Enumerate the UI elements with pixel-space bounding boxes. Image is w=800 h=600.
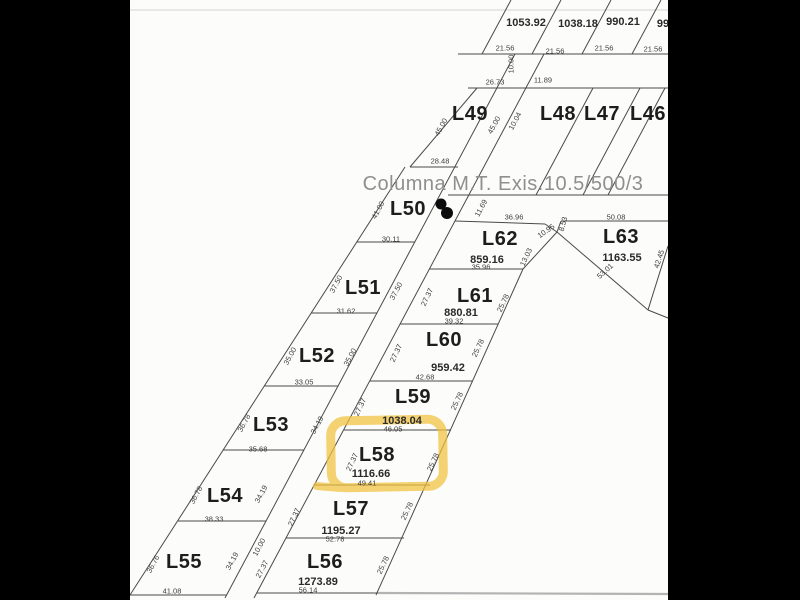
dim-42-68: 42.68: [416, 373, 435, 382]
dim-28-48: 28.48: [431, 157, 450, 166]
lot-L51: L51: [345, 277, 381, 299]
dim-21-56-a: 21.56: [496, 44, 515, 53]
dim-21-56-d: 21.56: [644, 45, 663, 54]
lot-L46: L46: [630, 103, 666, 125]
top-area-1: 1053.92: [506, 17, 546, 29]
cadastral-map-photo: Columna M.T. Exis.10.5/500/3 1053.921038…: [0, 0, 800, 600]
dim-41-08: 41.08: [163, 587, 182, 596]
lot-L63: L63: [603, 226, 639, 248]
lot-L57: L57: [333, 498, 369, 520]
dim-52-78: 52.78: [326, 535, 345, 544]
dim-50-08: 50.08: [607, 213, 626, 222]
lot-L61: L61: [457, 285, 493, 307]
lot-L49: L49: [452, 103, 488, 125]
dim-38-33: 38.33: [205, 515, 224, 524]
lot-L50: L50: [390, 198, 426, 220]
dim-21-56-c: 21.56: [595, 44, 614, 53]
left-black-bar: [0, 0, 130, 600]
dim-46-05: 46.05: [384, 425, 403, 434]
dim-56-14: 56.14: [299, 586, 318, 595]
lot-L55: L55: [166, 551, 202, 573]
dim-21-56-b: 21.56: [546, 47, 565, 56]
lot-L58: L58: [359, 444, 395, 466]
right-black-bar: [668, 0, 800, 600]
dim-33-05: 33.05: [295, 378, 314, 387]
dim-49-41: 49.41: [358, 479, 377, 488]
columna-note: Columna M.T. Exis.10.5/500/3: [363, 173, 644, 195]
dim-31-62: 31.62: [337, 307, 356, 316]
dim-26-73: 26.73: [486, 78, 505, 87]
area-L60: 959.42: [431, 362, 465, 374]
lot-L52: L52: [299, 345, 335, 367]
paper-background: [130, 0, 668, 600]
lot-L56: L56: [307, 551, 343, 573]
lot-L54: L54: [207, 485, 243, 507]
lot-L48: L48: [540, 103, 576, 125]
dim-10-00-top: 10.00: [507, 55, 516, 74]
lot-L53: L53: [253, 414, 289, 436]
dim-39-32: 39.32: [445, 317, 464, 326]
lot-L59: L59: [395, 386, 431, 408]
dim-36-96: 36.96: [505, 213, 524, 222]
lot-L47: L47: [584, 103, 620, 125]
top-area-4: 99: [657, 18, 669, 30]
columna-dot-icon: [441, 207, 453, 219]
bottom-boundary-faded-line: [378, 593, 668, 594]
lot-L62: L62: [482, 228, 518, 250]
top-area-3: 990.21: [606, 16, 640, 28]
dim-35-96: 35.96: [472, 263, 491, 272]
dim-11-89: 11.89: [534, 76, 552, 85]
dim-35-68: 35.68: [249, 445, 268, 454]
top-area-2: 1038.18: [558, 18, 598, 30]
dim-30-11: 30.11: [382, 235, 400, 244]
highlight-tail-stroke: [317, 486, 340, 488]
survey-drawing: Columna M.T. Exis.10.5/500/3 1053.921038…: [0, 0, 800, 600]
lot-L60: L60: [426, 329, 462, 351]
